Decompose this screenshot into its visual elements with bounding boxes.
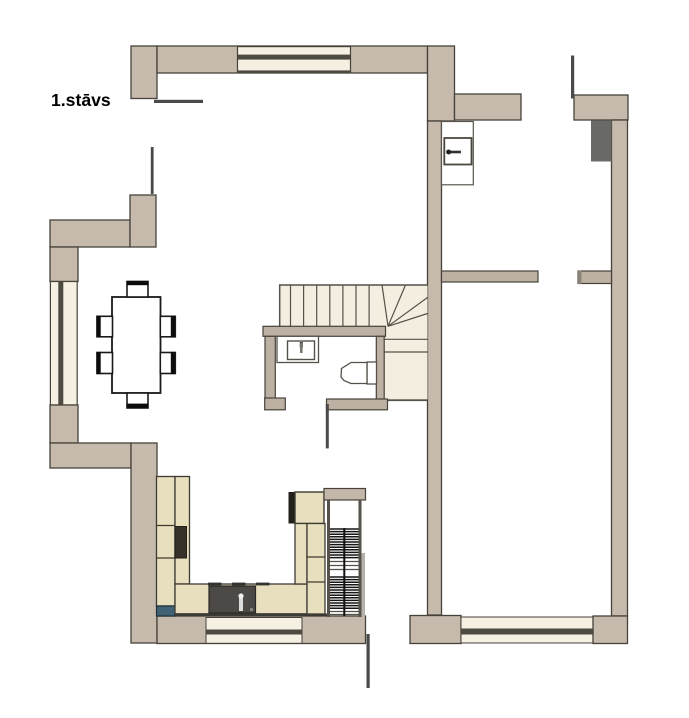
svg-text:1.stāvs: 1.stāvs xyxy=(51,90,111,110)
